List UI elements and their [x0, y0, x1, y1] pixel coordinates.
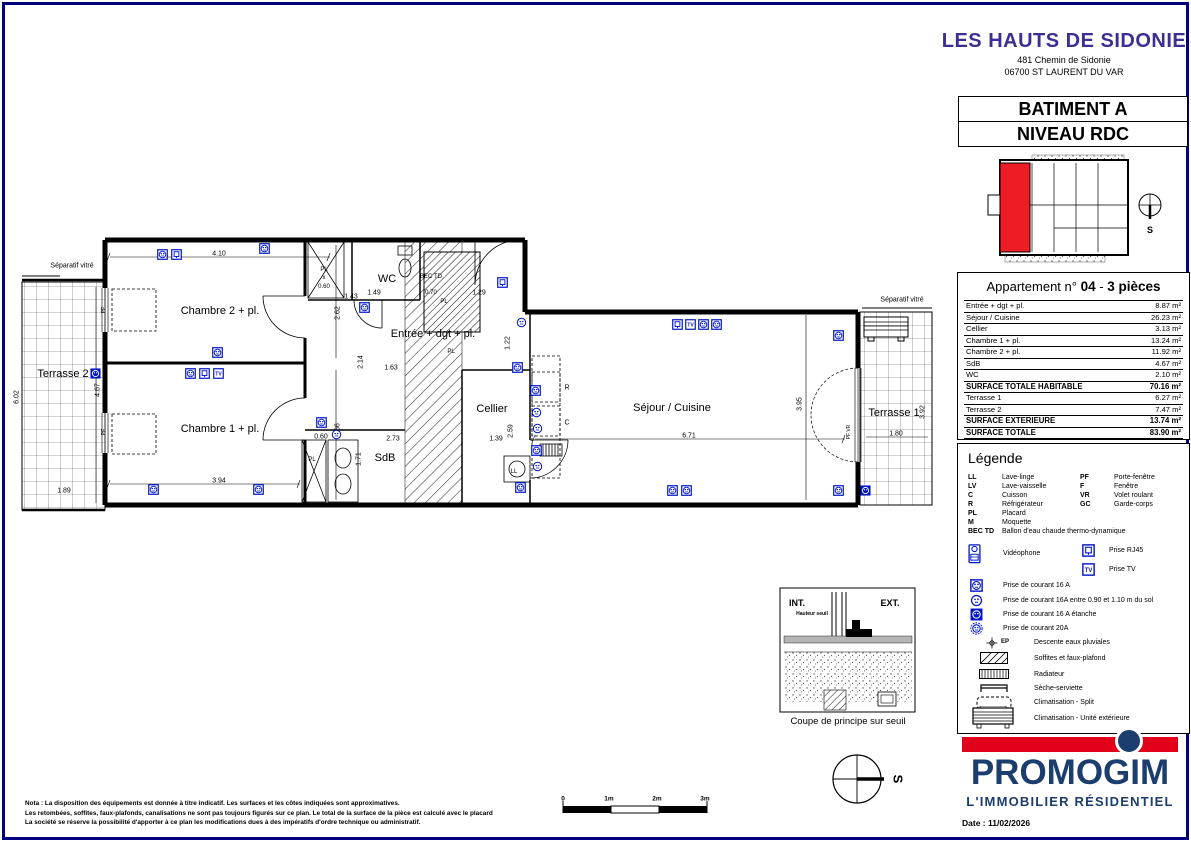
- power-socket-icon: [515, 482, 526, 493]
- surface-row: Terrasse 1 6.27 m²: [964, 392, 1183, 404]
- svg-text:TV: TV: [215, 371, 222, 377]
- room-label: Terrasse 2: [37, 368, 88, 380]
- power-socket-icon: [698, 319, 709, 330]
- dimension-label: 3.94: [212, 478, 226, 485]
- legend-abbr-code: LV: [968, 483, 1002, 490]
- scale-tick-label: 1m: [604, 796, 613, 803]
- surface-row: Chambre 1 + pl. 13.24 m²: [964, 335, 1183, 347]
- surface-row: WC 2.10 m²: [964, 369, 1183, 381]
- project-title: LES HAUTS DE SIDONIE: [940, 30, 1188, 53]
- project-address-line1: 481 Chemin de Sidonie: [940, 55, 1188, 65]
- rainwater-code: EP: [1001, 639, 1009, 645]
- building-name: BATIMENT A: [959, 97, 1187, 122]
- surface-row: SURFACE EXTERIEURE 13.74 m²: [964, 415, 1183, 427]
- title-block: BATIMENT A NIVEAU RDC: [958, 96, 1188, 147]
- power-socket-icon: [157, 249, 168, 260]
- tv-socket-icon: TV: [685, 319, 696, 330]
- legend-abbr-code: F: [1080, 483, 1114, 490]
- surface-label: Séjour / Cuisine: [966, 313, 1020, 324]
- tv-socket-icon: TV: [213, 368, 224, 379]
- scale-tick-label: 2m: [652, 796, 661, 803]
- plan-annotation: PF: [101, 307, 107, 313]
- terrace-2: [22, 276, 105, 510]
- promogim-name: PROMOGIM: [958, 753, 1182, 793]
- scale-bar: [563, 801, 707, 813]
- room-label: WC: [378, 273, 396, 285]
- surface-label: SURFACE TOTALE: [966, 428, 1036, 439]
- plan-annotation: PF VR: [846, 425, 852, 440]
- radiator-icon: [979, 669, 1009, 679]
- power-socket-icon: [253, 484, 264, 495]
- apartment-rows: Entrée + dgt + pl. 8.87 m²Séjour / Cuisi…: [964, 300, 1183, 439]
- room-label: SdB: [375, 452, 396, 464]
- legend-abbr-label: Porte-fenêtre: [1114, 474, 1155, 481]
- rj45-socket-icon: [497, 277, 508, 288]
- legend-abbr-row: LLLave-linge: [968, 474, 1034, 481]
- legend-electrical-label: Prise RJ45: [1109, 547, 1143, 554]
- power-socket-icon: [970, 594, 983, 607]
- legend-abbr-label: Fenêtre: [1114, 483, 1138, 490]
- surface-value: 70.16 m²: [1150, 382, 1181, 393]
- surface-value: 13.74 m²: [1150, 416, 1181, 427]
- surface-row: Terrasse 2 7.47 m²: [964, 404, 1183, 416]
- promogim-tagline: L'IMMOBILIER RÉSIDENTIEL: [958, 794, 1182, 809]
- legend-abbr-row: VRVolet roulant: [1080, 492, 1153, 499]
- legend-abbr-code: GC: [1080, 501, 1114, 508]
- surface-label: Terrasse 2: [966, 405, 1001, 416]
- legend-symbol-label: Sèche-serviette: [1034, 685, 1083, 692]
- apartment-title-separator: -: [1099, 279, 1103, 294]
- apartment-title-prefix: Appartement n°: [986, 279, 1076, 294]
- plan-annotation: PL: [320, 267, 327, 273]
- room-label: Chambre 1 + pl.: [181, 423, 260, 435]
- power-socket-icon: [531, 445, 542, 456]
- power-socket-icon: [185, 368, 196, 379]
- surface-row: Entrée + dgt + pl. 8.87 m²: [964, 300, 1183, 312]
- legend-abbr-label: Cuisson: [1002, 492, 1027, 499]
- legend-abbr-row: PLPlacard: [968, 510, 1026, 517]
- compass-main-label: S: [891, 775, 906, 784]
- legend-abbr-label: Garde-corps: [1114, 501, 1153, 508]
- power-socket-icon: [970, 622, 983, 635]
- power-socket-icon: [259, 243, 270, 254]
- legend-symbol-label: Descente eaux pluviales: [1034, 639, 1110, 646]
- power-socket-icon: [667, 485, 678, 496]
- svg-text:TV: TV: [687, 322, 694, 328]
- scale-tick-label: 3m: [700, 796, 709, 803]
- soffit-icon: [980, 652, 1008, 664]
- tv-socket-icon: TV: [1082, 563, 1095, 576]
- legend-electrical-label: Prise de courant 16 A: [1003, 582, 1070, 589]
- power-socket-icon: [512, 362, 523, 373]
- rj45-socket-icon: [171, 249, 182, 260]
- legend-abbr-label: Placard: [1002, 510, 1026, 517]
- power-socket-icon: [970, 579, 983, 592]
- dimension-label: 6.71: [682, 433, 696, 440]
- legend-abbr-row: CCuisson: [968, 492, 1027, 499]
- dimension-label: 1.80: [889, 431, 903, 438]
- surface-value: 11.92 m²: [1152, 347, 1181, 358]
- surface-row: SURFACE TOTALE 83.90 m²: [964, 427, 1183, 440]
- plan-annotation: PL: [447, 349, 454, 355]
- mid-height-socket-icon: [516, 317, 527, 328]
- legend-box: Légende LLLave-lingeLVLave-vaisselleCCui…: [957, 443, 1190, 734]
- legend-electrical-label: Prise de courant 16A entre 0.90 et 1.10 …: [1003, 597, 1153, 604]
- surface-label: Terrasse 1: [966, 393, 1001, 404]
- dimension-label: 2.14: [358, 355, 365, 369]
- surface-label: Cellier: [966, 324, 988, 335]
- coupe-ext-label: EXT.: [880, 598, 899, 608]
- rj45-socket-icon: [672, 319, 683, 330]
- legend-abbr-code: PL: [968, 510, 1002, 517]
- power-socket-icon: [681, 485, 692, 496]
- videophone-icon: [968, 544, 981, 564]
- legend-abbr-code: R: [968, 501, 1002, 508]
- waterproof-socket-icon: [860, 485, 871, 496]
- compass-main: [833, 755, 884, 803]
- promogim-red-bar: [962, 737, 1178, 752]
- wardrobes: [112, 289, 156, 454]
- dimension-label: 6.02: [14, 390, 21, 404]
- room-label: Séjour / Cuisine: [633, 402, 711, 414]
- surface-row: SURFACE TOTALE HABITABLE 70.16 m²: [964, 381, 1183, 393]
- level-name: NIVEAU RDC: [959, 122, 1187, 146]
- dimension-label: 3.95: [797, 397, 804, 411]
- dimension-label: 4.67: [95, 383, 102, 397]
- power-socket-icon: [530, 385, 541, 396]
- plan-annotation: Séparatif vitré: [50, 263, 93, 270]
- key-plan-compass-label: S: [1147, 225, 1153, 235]
- key-plan-highlighted-unit: [1000, 163, 1030, 252]
- surface-value: 3.13 m²: [1155, 324, 1181, 335]
- note-line: Les retombées, soffites, faux-plafonds, …: [25, 809, 493, 819]
- plan-annotation: R: [564, 385, 569, 392]
- surface-label: WC: [966, 370, 979, 381]
- rj45-socket-icon: [199, 368, 210, 379]
- surface-label: SdB: [966, 359, 980, 370]
- coupe-note: Hauteur seuil: [796, 611, 828, 617]
- legend-abbr-row: BEC TDBallon d'eau chaude thermo-dynamiq…: [968, 528, 1126, 535]
- room-label: Cellier: [476, 403, 507, 415]
- surface-label: SURFACE TOTALE HABITABLE: [966, 382, 1083, 393]
- mid-height-socket-icon: [532, 461, 543, 472]
- surface-value: 2.10 m²: [1155, 370, 1181, 381]
- surface-label: Chambre 1 + pl.: [966, 336, 1020, 347]
- room-label: Chambre 2 + pl.: [181, 305, 260, 317]
- power-socket-icon: [212, 347, 223, 358]
- room-label: Entrée + dgt + pl.: [391, 328, 475, 340]
- surface-row: Cellier 3.13 m²: [964, 323, 1183, 335]
- dimension-label: 2.62: [335, 306, 342, 320]
- coupe-caption: Coupe de principe sur seuil: [768, 716, 928, 727]
- dimension-label: 1.39: [489, 436, 503, 443]
- surface-row: Séjour / Cuisine 26.23 m²: [964, 312, 1183, 324]
- towel-dryer-icon: [979, 683, 1009, 693]
- legend-abbr-row: MMoquette: [968, 519, 1031, 526]
- apartment-number: 04: [1081, 279, 1096, 294]
- room-label: Terrasse 1: [868, 407, 919, 419]
- surface-value: 7.47 m²: [1155, 405, 1181, 416]
- plan-annotation: 0.70: [425, 290, 437, 296]
- dimension-label: 1.49: [367, 290, 381, 297]
- legend-abbr-label: Ballon d'eau chaude thermo-dynamique: [1002, 528, 1126, 535]
- plan-annotation: PF: [101, 429, 107, 435]
- legend-abbr-label: Lave-vaisselle: [1002, 483, 1046, 490]
- dimension-label: 4.10: [212, 251, 226, 258]
- plan-annotation: x: [323, 275, 326, 281]
- legend-abbr-label: Réfrigérateur: [1002, 501, 1043, 508]
- plan-annotation: C: [564, 420, 569, 427]
- power-socket-icon: [359, 302, 370, 313]
- legend-abbr-label: Volet roulant: [1114, 492, 1153, 499]
- plan-annotation: 0.60: [318, 284, 330, 290]
- plan-annotation: Séparatif vitré: [880, 297, 923, 304]
- legend-symbol-label: Climatisation - Split: [1034, 699, 1094, 706]
- plan-annotation: LL: [511, 469, 518, 475]
- power-socket-icon: [316, 417, 327, 428]
- power-socket-icon: [833, 330, 844, 341]
- dimension-label: 1.63: [384, 365, 398, 372]
- ac-outdoor-icon: [972, 706, 1016, 729]
- terrace-door-swings: [811, 368, 858, 462]
- power-socket-icon: [148, 484, 159, 495]
- surface-row: Chambre 2 + pl. 11.92 m²: [964, 346, 1183, 358]
- surface-label: Entrée + dgt + pl.: [966, 301, 1024, 312]
- legend-symbol-label: Climatisation - Unité extérieure: [1034, 715, 1130, 722]
- dimension-label: 1.43: [344, 294, 358, 301]
- legend-symbol-label: Radiateur: [1034, 671, 1064, 678]
- apartment-surface-table: Appartement n° 04 - 3 pièces Entrée + dg…: [957, 272, 1190, 440]
- rj45-icon: [1082, 544, 1095, 557]
- plan-annotation: PL: [308, 457, 315, 463]
- legend-abbr-code: C: [968, 492, 1002, 499]
- surface-value: 6.27 m²: [1155, 393, 1181, 404]
- surface-value: 4.67 m²: [1155, 359, 1181, 370]
- mid-height-socket-icon: [531, 407, 542, 418]
- legend-title: Légende: [968, 450, 1189, 466]
- legend-abbr-label: Moquette: [1002, 519, 1031, 526]
- waterproof-socket-icon: [970, 608, 983, 621]
- legend-abbr-code: BEC TD: [968, 528, 1002, 535]
- legend-abbr-code: LL: [968, 474, 1002, 481]
- legend-abbr-row: RRéfrigérateur: [968, 501, 1043, 508]
- surface-value: 26.23 m²: [1151, 313, 1181, 324]
- legend-abbr-row: LVLave-vaisselle: [968, 483, 1046, 490]
- legend-abbr-code: PF: [1080, 474, 1114, 481]
- legend-abbr-code: M: [968, 519, 1002, 526]
- rainwater-icon: [986, 637, 998, 649]
- plan-annotation: PL: [440, 299, 447, 305]
- dimension-label: 1.22: [505, 336, 512, 350]
- mid-height-socket-icon: [532, 423, 543, 434]
- plan-date: Date : 11/02/2026: [962, 818, 1030, 828]
- dimension-label: 1.29: [472, 290, 486, 297]
- legend-electrical-label: Vidéophone: [1003, 550, 1040, 557]
- plan-annotation: BEC TD: [420, 274, 442, 280]
- legend-electrical-label: Prise TV: [1109, 566, 1136, 573]
- surface-value: 13.24 m²: [1151, 336, 1181, 347]
- plan-notes: Nota : La disposition des équipements es…: [25, 799, 493, 828]
- dimension-label: 2.59: [508, 424, 515, 438]
- key-plan: [988, 155, 1161, 262]
- power-socket-icon: [711, 319, 722, 330]
- surface-row: SdB 4.67 m²: [964, 358, 1183, 370]
- dimension-label: 0.60: [314, 434, 328, 441]
- floor-plan-sheet: { "header": { "project": "LES HAUTS DE S…: [0, 0, 1191, 842]
- legend-abbr-code: VR: [1080, 492, 1114, 499]
- note-line: Nota : La disposition des équipements es…: [25, 799, 493, 809]
- svg-text:TV: TV: [1085, 568, 1093, 574]
- scale-tick-label: 0: [561, 796, 565, 803]
- apartment-type: 3 pièces: [1107, 279, 1160, 294]
- legend-abbr-row: FFenêtre: [1080, 483, 1138, 490]
- legend-abbr-row: PFPorte-fenêtre: [1080, 474, 1155, 481]
- note-line: La société se réserve la possibilité d'a…: [25, 818, 493, 828]
- surface-value: 83.90 m²: [1150, 428, 1181, 439]
- power-socket-icon: [833, 485, 844, 496]
- surface-label: SURFACE EXTERIEURE: [966, 416, 1055, 427]
- legend-abbr-label: Lave-linge: [1002, 474, 1034, 481]
- waterproof-socket-icon: [90, 368, 101, 379]
- surface-label: Chambre 2 + pl.: [966, 347, 1020, 358]
- surface-value: 8.87 m²: [1155, 301, 1181, 312]
- coupe-int-label: INT.: [789, 598, 805, 608]
- dimension-label: 1.89: [57, 488, 71, 495]
- dimension-label: 1.71: [356, 452, 363, 466]
- apartment-title: Appartement n° 04 - 3 pièces: [958, 279, 1189, 294]
- project-address-line2: 06700 ST LAURENT DU VAR: [940, 67, 1188, 77]
- legend-symbol-label: Soffites et faux-plafond: [1034, 655, 1105, 662]
- dimension-label: 2.73: [386, 436, 400, 443]
- legend-electrical-label: Prise de courant 16 A étanche: [1003, 611, 1096, 618]
- mid-height-socket-icon: [331, 429, 342, 440]
- legend-electrical-label: Prise de courant 20A: [1003, 625, 1068, 632]
- dimension-label: 3.92: [920, 405, 927, 419]
- legend-abbr-row: GCGarde-corps: [1080, 501, 1153, 508]
- promogim-logo-circle: [1115, 727, 1143, 755]
